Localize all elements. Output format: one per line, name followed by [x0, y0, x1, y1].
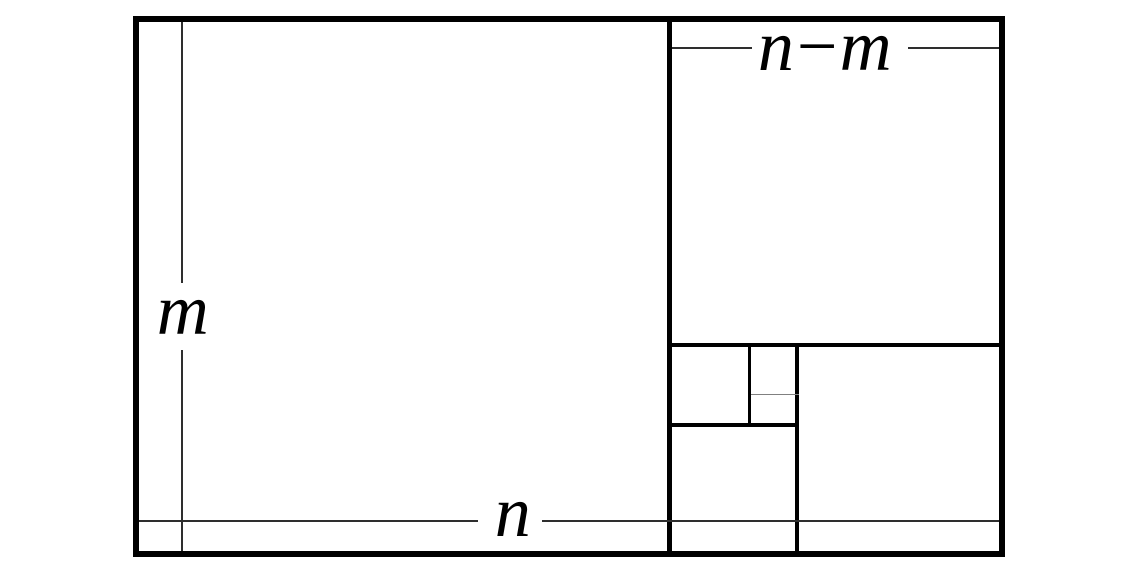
label-n-minus-m: n−m: [758, 10, 890, 82]
measure-line-n-left: [139, 520, 478, 522]
label-n: n: [495, 476, 530, 548]
divider-square-m: [667, 16, 672, 557]
measure-line-n-right: [542, 520, 999, 522]
measure-line-m-top: [181, 22, 183, 283]
divider-square-level3: [795, 343, 799, 557]
divider-square-nm: [667, 343, 1005, 347]
label-m: m: [157, 274, 208, 346]
outer-rectangle: [133, 16, 1005, 557]
measure-line-nm-left: [672, 47, 752, 49]
divider-square-level5: [748, 345, 751, 426]
diagram-canvas: m n n−m: [0, 0, 1140, 570]
divider-square-level4: [667, 423, 799, 427]
divider-square-level6: [751, 394, 799, 395]
measure-line-nm-right: [908, 47, 999, 49]
